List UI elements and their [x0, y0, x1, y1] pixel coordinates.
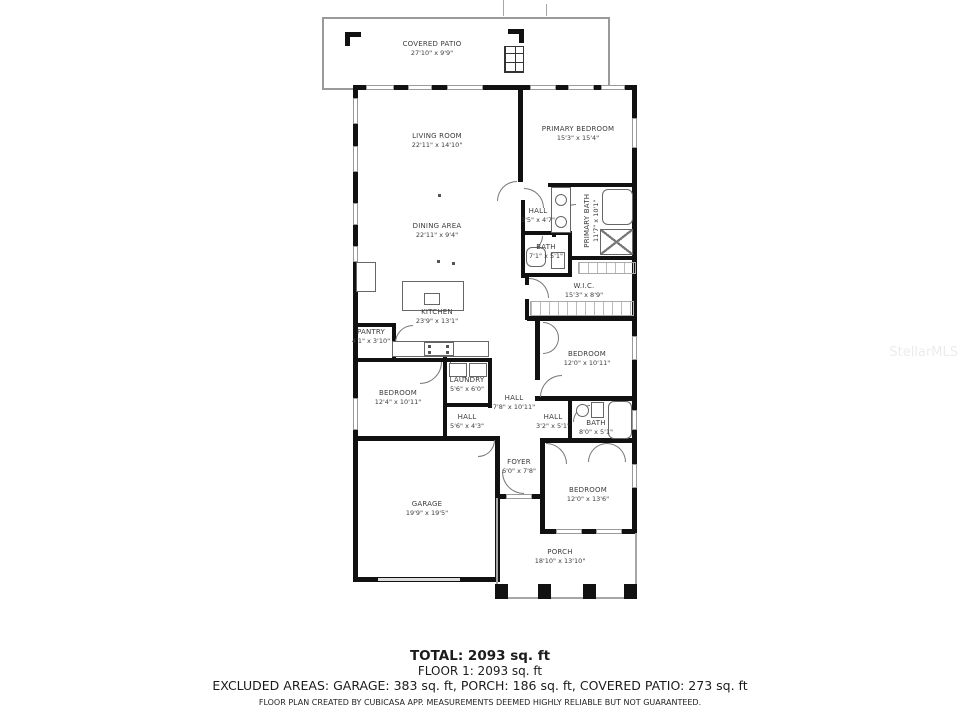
wall	[353, 85, 637, 90]
wall	[523, 273, 572, 277]
room-label-garage: GARAGE 19'9" x 19'5"	[382, 500, 472, 518]
wall	[570, 256, 637, 260]
garage-entry-arc	[478, 440, 495, 457]
room-label-primary-bedroom: PRIMARY BEDROOM 15'3" x 15'4"	[528, 125, 628, 143]
front-door-opening	[506, 494, 532, 499]
total-area-text: TOTAL: 2093 sq. ft	[0, 648, 960, 664]
room-label-hall-left: HALL 5'6" x 4'3"	[437, 413, 497, 431]
window	[568, 85, 594, 90]
wall	[540, 529, 637, 534]
room-label-bedroom-left: BEDROOM 12'4" x 10'11"	[353, 389, 443, 407]
burner	[428, 351, 431, 354]
porch-pillar	[583, 584, 596, 599]
room-label-covered-patio: COVERED PATIO 27'10" x 9'9"	[387, 40, 477, 58]
wall	[527, 316, 637, 321]
room-label-porch: PORCH 18'10" x 13'10"	[515, 548, 605, 566]
porch-pillar	[538, 584, 551, 599]
window	[632, 410, 637, 430]
window	[408, 85, 432, 90]
room-label-hall-primary: HALL 3'5" x 4'7"	[508, 207, 568, 225]
room-label-primary-bath: PRIMARY BATH 11'7" x 10'1"	[583, 179, 601, 263]
ceiling-fixture	[437, 260, 440, 263]
porch-edge	[496, 597, 637, 599]
window	[596, 529, 622, 534]
burner	[446, 345, 449, 348]
closet-shelving	[530, 301, 634, 316]
fridge	[356, 262, 376, 292]
room-label-bedroom-mid: BEDROOM 12'0" x 10'11"	[542, 350, 632, 368]
toilet	[591, 402, 604, 418]
room-label-laundry: LAUNDRY 5'6" x 6'0"	[437, 376, 497, 394]
shower	[600, 229, 633, 255]
bathtub	[602, 189, 633, 225]
patio-corner-mark	[519, 29, 524, 43]
wall	[535, 318, 540, 380]
porch-pillar	[495, 584, 508, 599]
dryer	[469, 363, 487, 377]
window	[447, 85, 483, 90]
door-arc	[524, 188, 544, 208]
stellar-mls-watermark: StellarMLS	[889, 345, 958, 360]
sink	[555, 194, 567, 206]
washer	[449, 363, 467, 377]
wall	[518, 85, 523, 182]
room-label-wic: W.I.C. 15'3" x 8'9"	[539, 282, 629, 300]
door-arc	[546, 443, 567, 464]
floor1-area-text: FLOOR 1: 2093 sq. ft	[0, 664, 960, 678]
closet-door-arc	[588, 443, 607, 462]
excluded-areas-text: EXCLUDED AREAS: GARAGE: 383 sq. ft, PORC…	[0, 678, 960, 693]
ceiling-fixture	[452, 262, 455, 265]
room-label-bath-small: BATH 7'1" x 5'1"	[516, 243, 576, 261]
island-sink	[424, 293, 440, 305]
room-label-dining: DINING AREA 22'11" x 9'4"	[392, 222, 482, 240]
patio-corner-mark	[345, 32, 350, 46]
window	[353, 203, 358, 225]
dimension-tick	[546, 4, 547, 16]
floor-plan-canvas: COVERED PATIO 27'10" x 9'9" LIVING ROOM …	[0, 0, 960, 720]
window	[353, 98, 358, 124]
disclaimer-text: FLOOR PLAN CREATED BY CUBICASA APP. MEAS…	[0, 698, 960, 707]
burner	[446, 351, 449, 354]
closet-door-arc	[607, 443, 626, 462]
room-label-hall-center: HALL 7'8" x 10'11"	[469, 394, 559, 412]
porch-edge	[496, 498, 498, 598]
window	[353, 246, 358, 262]
door-arc	[497, 181, 517, 201]
burner	[428, 345, 431, 348]
window	[632, 336, 637, 360]
garage-door	[378, 578, 460, 581]
closet-door-arc	[543, 322, 559, 338]
room-label-bedroom-bottom: BEDROOM 12'0" x 13'6"	[543, 486, 633, 504]
room-label-foyer: FOYER 6'0" x 7'8"	[489, 458, 549, 476]
window	[632, 118, 637, 148]
ceiling-fixture	[438, 194, 441, 197]
room-label-pantry: PANTRY 4'1" x 3'10"	[341, 328, 401, 346]
room-label-living: LIVING ROOM 22'11" x 14'10"	[392, 132, 482, 150]
window	[530, 85, 556, 90]
wall	[353, 323, 393, 327]
room-label-kitchen: KITCHEN 23'9" x 13'1"	[392, 308, 482, 326]
room-label-bath-bottom: BATH 8'0" x 5'1"	[566, 419, 626, 437]
window	[353, 146, 358, 172]
window	[366, 85, 394, 90]
window	[556, 529, 582, 534]
patio-window-grid	[504, 46, 524, 73]
closet-shelving	[578, 262, 636, 274]
porch-pillar	[624, 584, 637, 599]
window	[632, 464, 637, 488]
window	[601, 85, 625, 90]
dimension-tick	[503, 0, 504, 16]
